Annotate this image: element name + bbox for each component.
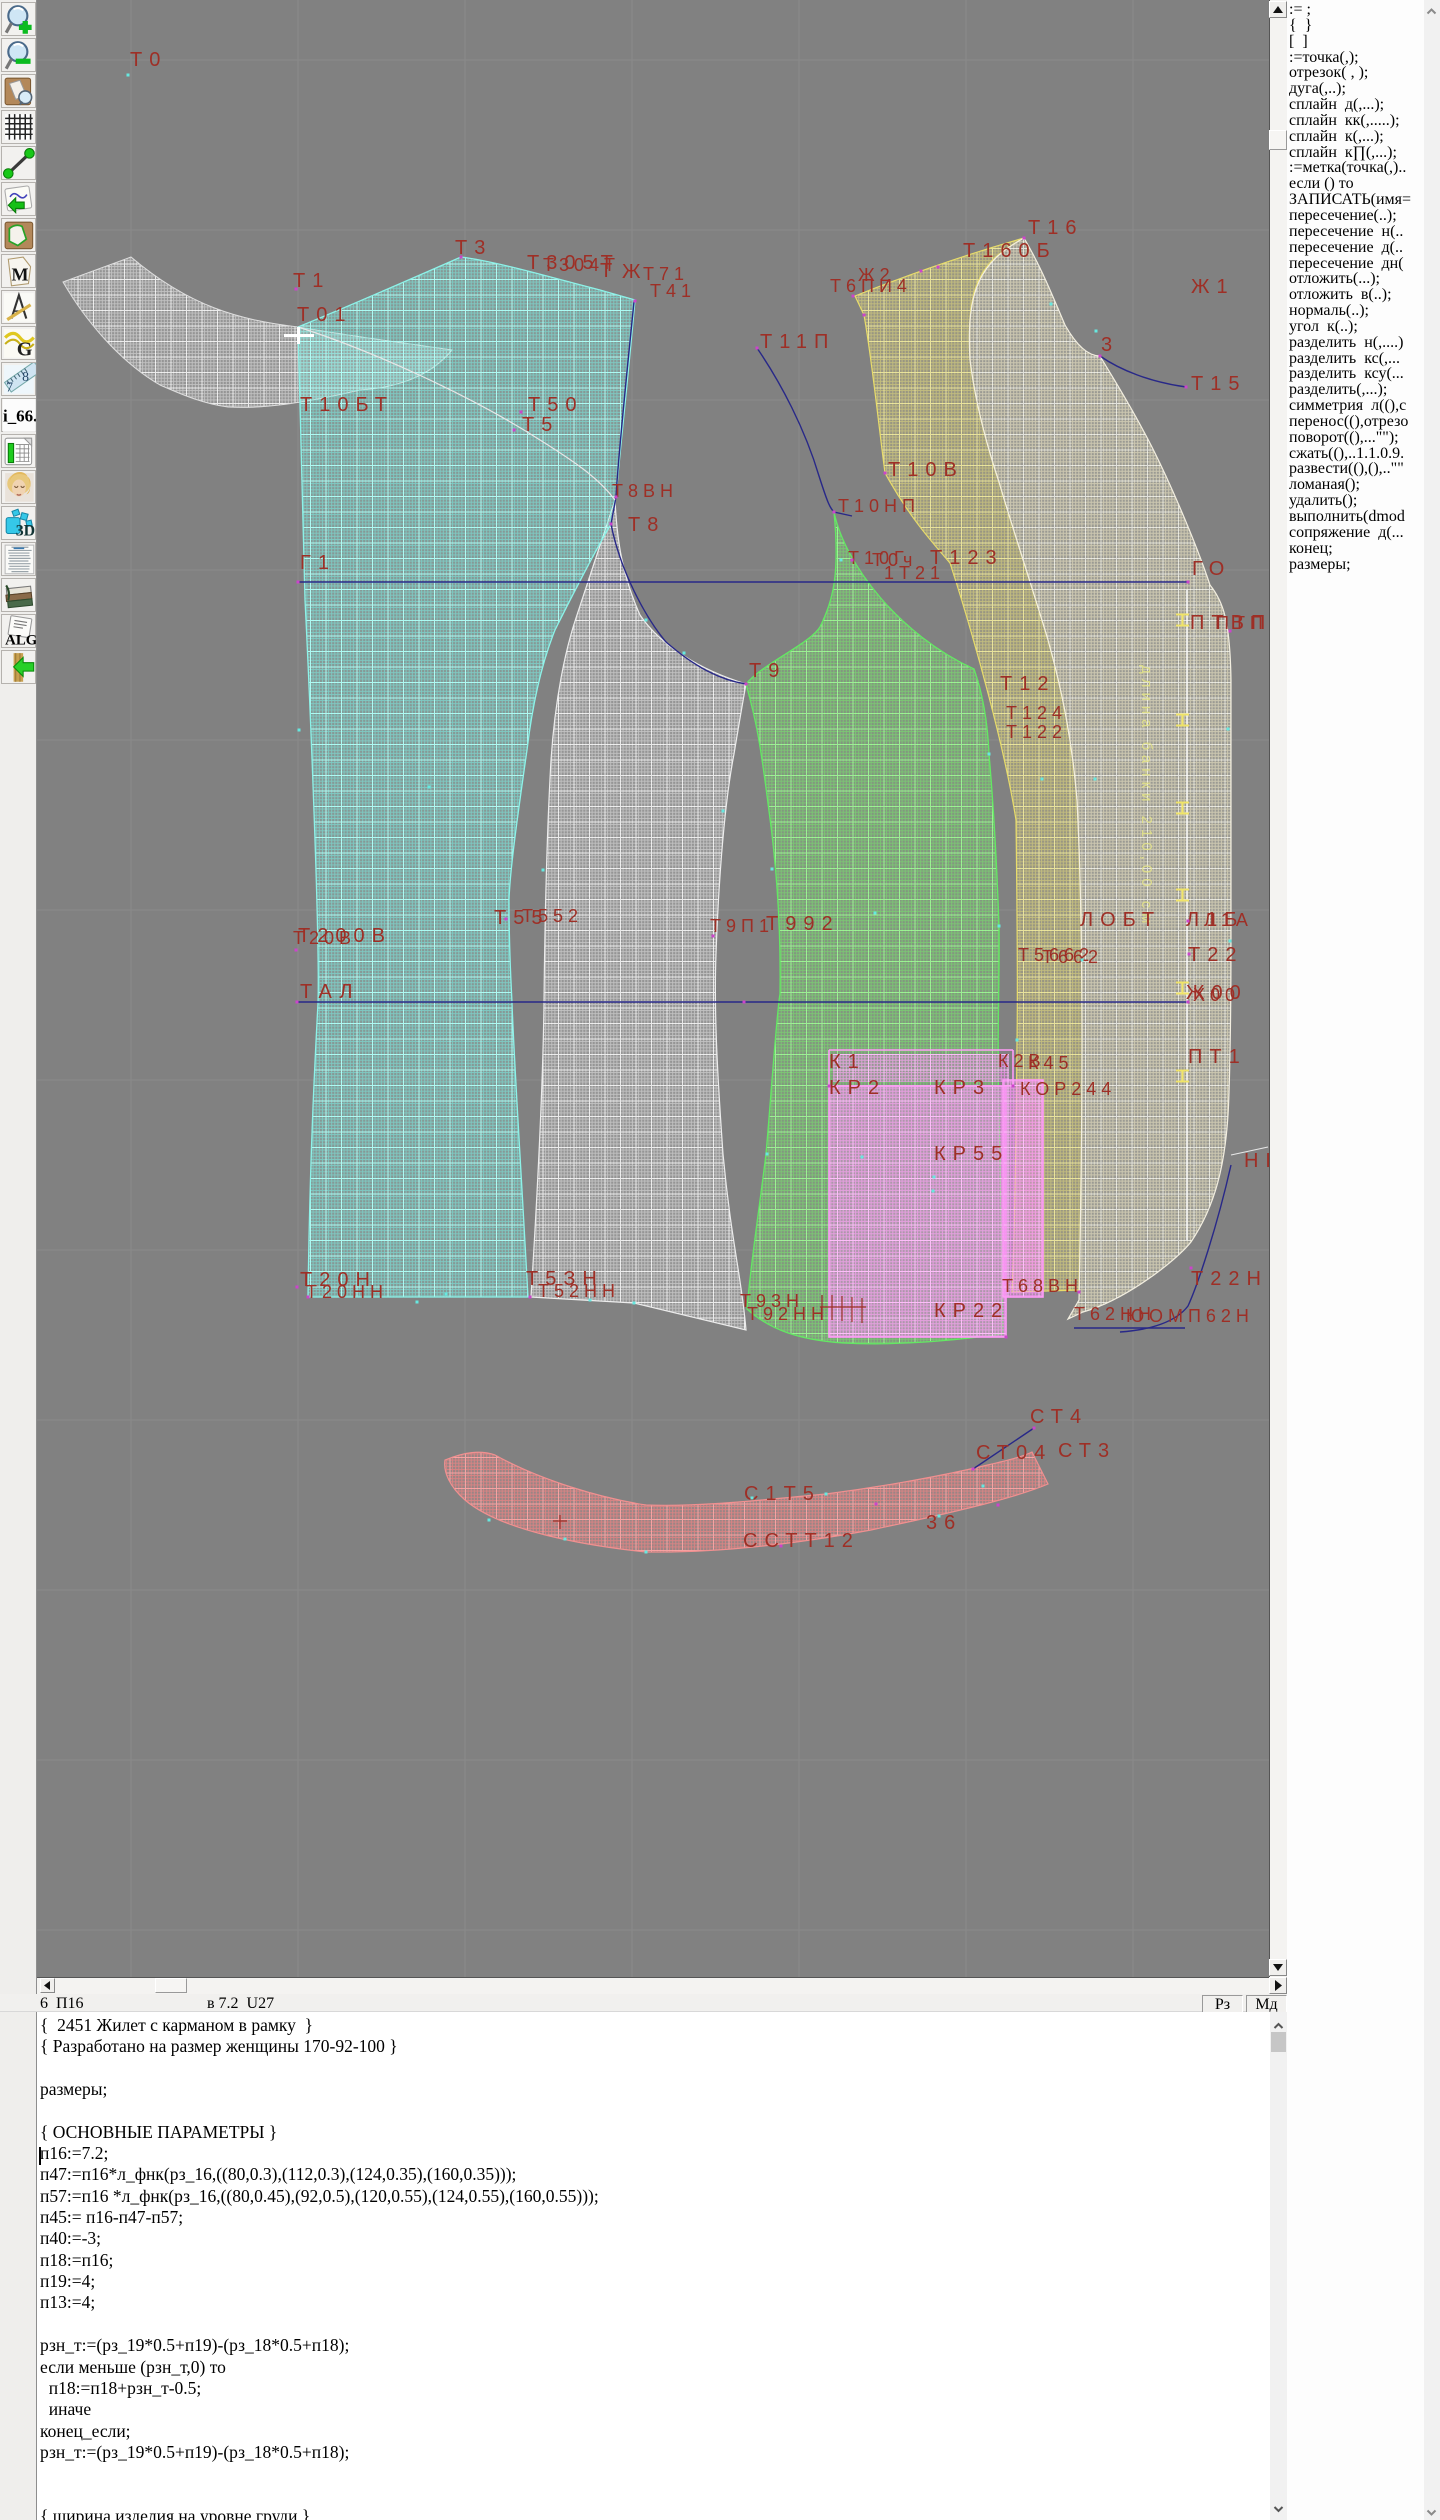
svg-text:Т12: Т12 [1000,673,1055,695]
svg-text:Т0: Т0 [130,49,167,71]
svg-text:Т52НН: Т52НН [538,1281,620,1301]
svg-text:Т6ПИ4: Т6ПИ4 [830,276,912,296]
svg-text:Т1: Т1 [293,270,330,292]
svg-text:Т122: Т122 [1006,722,1067,742]
svg-text:Т11П: Т11П [760,331,835,353]
svg-text:i_66.: i_66. [3,406,36,425]
svg-text:Т124: Т124 [1006,703,1067,723]
svg-text:3: 3 [1101,334,1119,356]
svg-text:Т10В: Т10В [888,459,964,481]
svg-text:Т20В: Т20В [293,928,356,948]
svg-text:Т160Б: Т160Б [963,240,1057,262]
svg-text:Т8ВН: Т8ВН [612,481,678,501]
svg-text:длина банки 210,00 см: длина банки 210,00 см [1138,665,1155,929]
svg-text:8: 8 [22,369,29,384]
svg-text:Т8: Т8 [628,514,665,536]
svg-text:Т5: Т5 [522,414,559,436]
svg-text:Т15: Т15 [1191,373,1246,395]
svg-text:Т16: Т16 [1028,217,1083,239]
svg-text:НП: НП [1244,1150,1269,1172]
svg-text:7: 7 [6,380,13,395]
svg-text:ALG: ALG [5,633,36,648]
svg-text:36: 36 [926,1512,962,1534]
svg-text:Х00: Х00 [1193,985,1240,1005]
svg-text:Т01: Т01 [297,304,352,326]
svg-text:ТАЛ: ТАЛ [300,981,359,1003]
svg-text:Г1: Г1 [300,552,336,574]
svg-text:Т9П1: Т9П1 [710,916,774,936]
svg-text:Т10НП: Т10НП [838,496,920,516]
svg-text:К45: К45 [1028,1053,1074,1073]
svg-text:Т662: Т662 [1042,947,1103,967]
svg-text:Т41: Т41 [650,281,696,301]
svg-text:Т9: Т9 [749,660,786,682]
svg-text:Ж1: Ж1 [1191,276,1235,298]
svg-text:ПТП: ПТП [1216,613,1268,633]
svg-text:Т50: Т50 [528,394,583,416]
svg-text:КР2: КР2 [829,1077,886,1099]
svg-text:3D: 3D [16,523,35,540]
svg-text:СТ04: СТ04 [976,1442,1052,1464]
svg-text:Т22: Т22 [1188,944,1243,966]
svg-text:1Т21: 1Т21 [884,563,945,583]
svg-text:ПТ1: ПТ1 [1188,1046,1247,1068]
svg-text:КР22: КР22 [934,1300,1009,1322]
svg-text:ССТТ12: ССТТ12 [743,1530,860,1552]
svg-text:Т68ВН: Т68ВН [1002,1276,1083,1296]
svg-text:СТ4: СТ4 [1030,1406,1088,1428]
svg-text:ЛОБТ: ЛОБТ [1080,909,1161,931]
svg-text:ГО: ГО [1192,558,1231,580]
svg-text:Л1А: Л1А [1204,910,1253,930]
svg-text:Т92НН: Т92НН [747,1304,829,1324]
svg-text:Т552: Т552 [522,906,583,926]
svg-text:Т10БТ: Т10БТ [300,394,394,416]
svg-text:КР3: КР3 [934,1077,991,1099]
svg-text:Т20НН: Т20НН [306,1282,388,1302]
svg-text:КР55: КР55 [934,1143,1009,1165]
svg-text:G: G [17,339,33,360]
svg-text:К1: К1 [829,1051,866,1073]
svg-text:M: M [11,264,28,284]
svg-text:КОР244: КОР244 [1020,1079,1116,1099]
svg-text:ЮОМП62Н: ЮОМП62Н [1126,1306,1254,1326]
svg-text:СТ3: СТ3 [1058,1440,1116,1462]
svg-text:Т: Т [600,260,619,282]
svg-text:С1Т5: С1Т5 [744,1483,821,1505]
svg-text:Т22Н: Т22Н [1191,1268,1268,1290]
svg-text:Т992: Т992 [766,913,840,935]
